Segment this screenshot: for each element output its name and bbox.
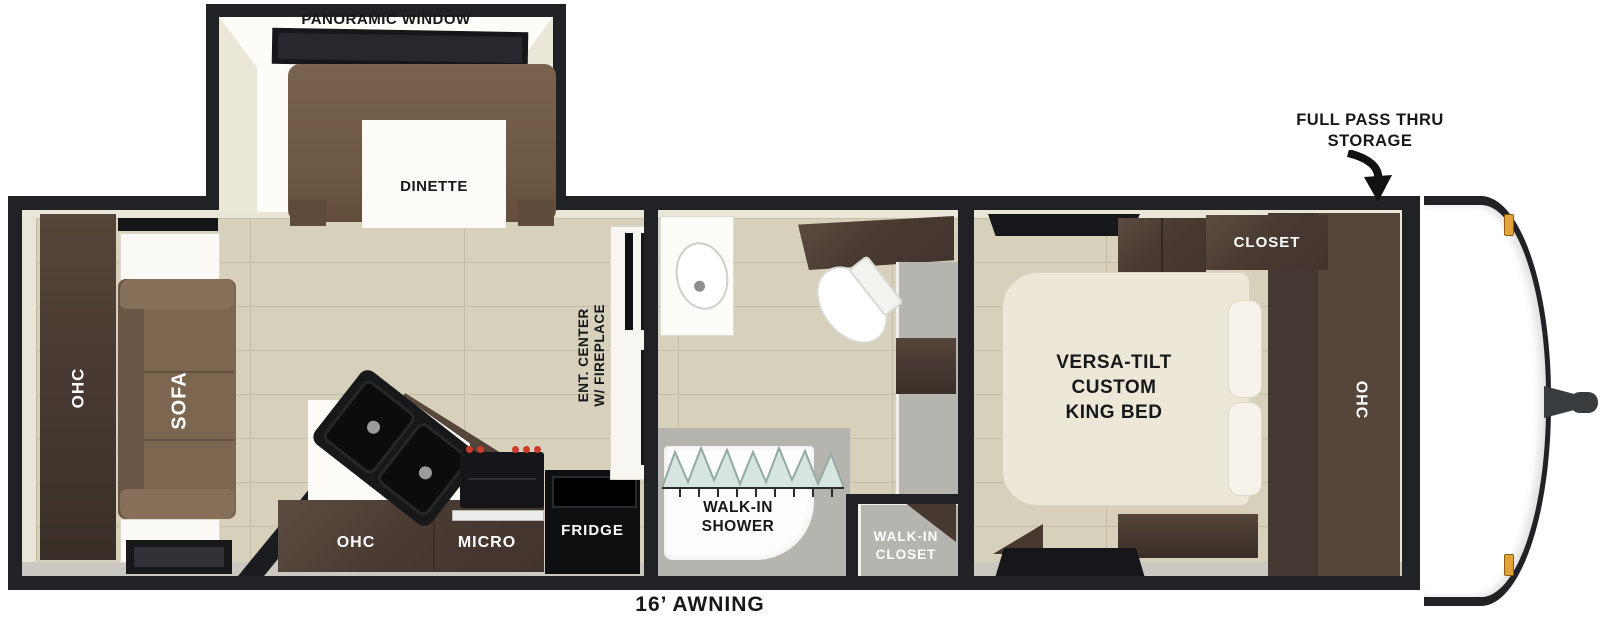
- wall-left: [8, 196, 22, 590]
- walk-in-shower-label: WALK-IN SHOWER: [664, 498, 812, 537]
- marker-light-bottom: [1504, 554, 1514, 576]
- sofa-arm-bottom: [120, 489, 234, 519]
- ent-center-text-1: ENT. CENTER: [576, 304, 592, 407]
- shower-text-1: WALK-IN: [664, 498, 812, 517]
- dinette-booth-wing: [290, 200, 326, 226]
- bedroom-closet-label: CLOSET: [1206, 234, 1328, 251]
- ent-center-text-2: W/ FIREPLACE: [592, 304, 608, 407]
- pass-thru-text-2: STORAGE: [1260, 131, 1480, 152]
- panoramic-window-glass: [272, 28, 529, 68]
- bed-text-3: KING BED: [1028, 400, 1200, 425]
- walk-in-closet-label: WALK-IN CLOSET: [856, 528, 956, 563]
- bedroom-closet-text: CLOSET: [1234, 234, 1301, 251]
- sofa-arm-top: [120, 279, 234, 309]
- sink-drain-icon: [364, 418, 382, 436]
- ent-center-label: ENT. CENTER W/ FIREPLACE: [527, 235, 657, 475]
- micro-text: MICRO: [458, 534, 516, 551]
- closet-wall-top: [846, 494, 958, 504]
- cabinet-seam: [1161, 218, 1163, 272]
- entry-step-mat: [126, 540, 232, 574]
- bedroom-window-bottom: [995, 548, 1145, 578]
- awning-text: 16’ AWNING: [635, 593, 764, 616]
- bed-text-2: CUSTOM: [1028, 375, 1200, 400]
- bath-drain-icon: [693, 280, 706, 293]
- panoramic-window-text: PANORAMIC WINDOW: [301, 11, 470, 28]
- wall-right: [1402, 196, 1420, 590]
- hitch-coupler-icon: [1570, 392, 1598, 413]
- entry-step-inner: [134, 547, 224, 567]
- bed-overhead-cabinet: [1118, 218, 1206, 272]
- wall-top-right: [552, 196, 1420, 210]
- bath-shelf: [896, 338, 956, 394]
- walkin-closet-text-2: CLOSET: [856, 546, 956, 564]
- walkin-closet-text-1: WALK-IN: [856, 528, 956, 546]
- king-bed-label: VERSA-TILT CUSTOM KING BED: [1028, 350, 1200, 425]
- pass-thru-storage-label: FULL PASS THRU STORAGE: [1260, 110, 1480, 151]
- shower-curtain-icon: [662, 442, 844, 490]
- burner-knob: [466, 446, 473, 453]
- closet-wall-left: [846, 494, 858, 576]
- oven-handle: [452, 510, 544, 521]
- stove-grate-line: [468, 478, 536, 480]
- pass-thru-arrow-icon: [1334, 150, 1394, 206]
- fridge-text: FRIDGE: [561, 522, 624, 539]
- micro-label: MICRO: [430, 534, 544, 552]
- bedroom-ohc-text: OHC: [1351, 381, 1369, 420]
- kitchen-ohc-label: OHC: [300, 534, 412, 552]
- burner-knob: [512, 446, 519, 453]
- rear-ohc-text: OHC: [68, 368, 88, 409]
- pass-thru-text-1: FULL PASS THRU: [1260, 110, 1480, 131]
- burner-knob: [477, 446, 484, 453]
- end-table-top: [120, 233, 220, 281]
- wall-bottom: [8, 576, 1420, 590]
- shower-rod-icon: [662, 487, 844, 497]
- sofa-label: SOFA: [150, 340, 210, 460]
- rv-floorplan: OHC SOFA OHC: [0, 0, 1600, 624]
- slideout-wall-left: [206, 4, 219, 210]
- bed-foot-bench: [1118, 514, 1258, 558]
- bed-pillow: [1228, 300, 1262, 398]
- rear-ohc-label: OHC: [48, 340, 108, 436]
- fridge: FRIDGE: [545, 470, 640, 574]
- sofa-text: SOFA: [168, 371, 191, 429]
- kitchen-ohc-text: OHC: [337, 534, 376, 551]
- dinette-table: DINETTE: [362, 120, 506, 228]
- bed-pillow: [1228, 402, 1262, 496]
- sofa-backrest: [118, 279, 144, 519]
- fridge-top: [552, 476, 637, 508]
- fridge-label: FRIDGE: [545, 522, 640, 539]
- wall-top-left: [8, 196, 220, 210]
- wall-bath-bedroom: [958, 210, 974, 576]
- bedroom-ohc-label: OHC: [1336, 356, 1384, 444]
- awning-label: 16’ AWNING: [560, 592, 840, 618]
- dinette-text: DINETTE: [400, 178, 468, 197]
- front-cap: [1424, 196, 1551, 606]
- tv-strip: [118, 218, 218, 231]
- sink-drain-icon: [416, 463, 434, 481]
- wall-living-bath: [644, 210, 658, 576]
- dinette-booth-wing: [518, 200, 554, 226]
- bed-text-1: VERSA-TILT: [1028, 350, 1200, 375]
- shower-text-2: SHOWER: [664, 517, 812, 536]
- marker-light-top: [1504, 214, 1514, 236]
- window-glass-inner: [278, 33, 522, 63]
